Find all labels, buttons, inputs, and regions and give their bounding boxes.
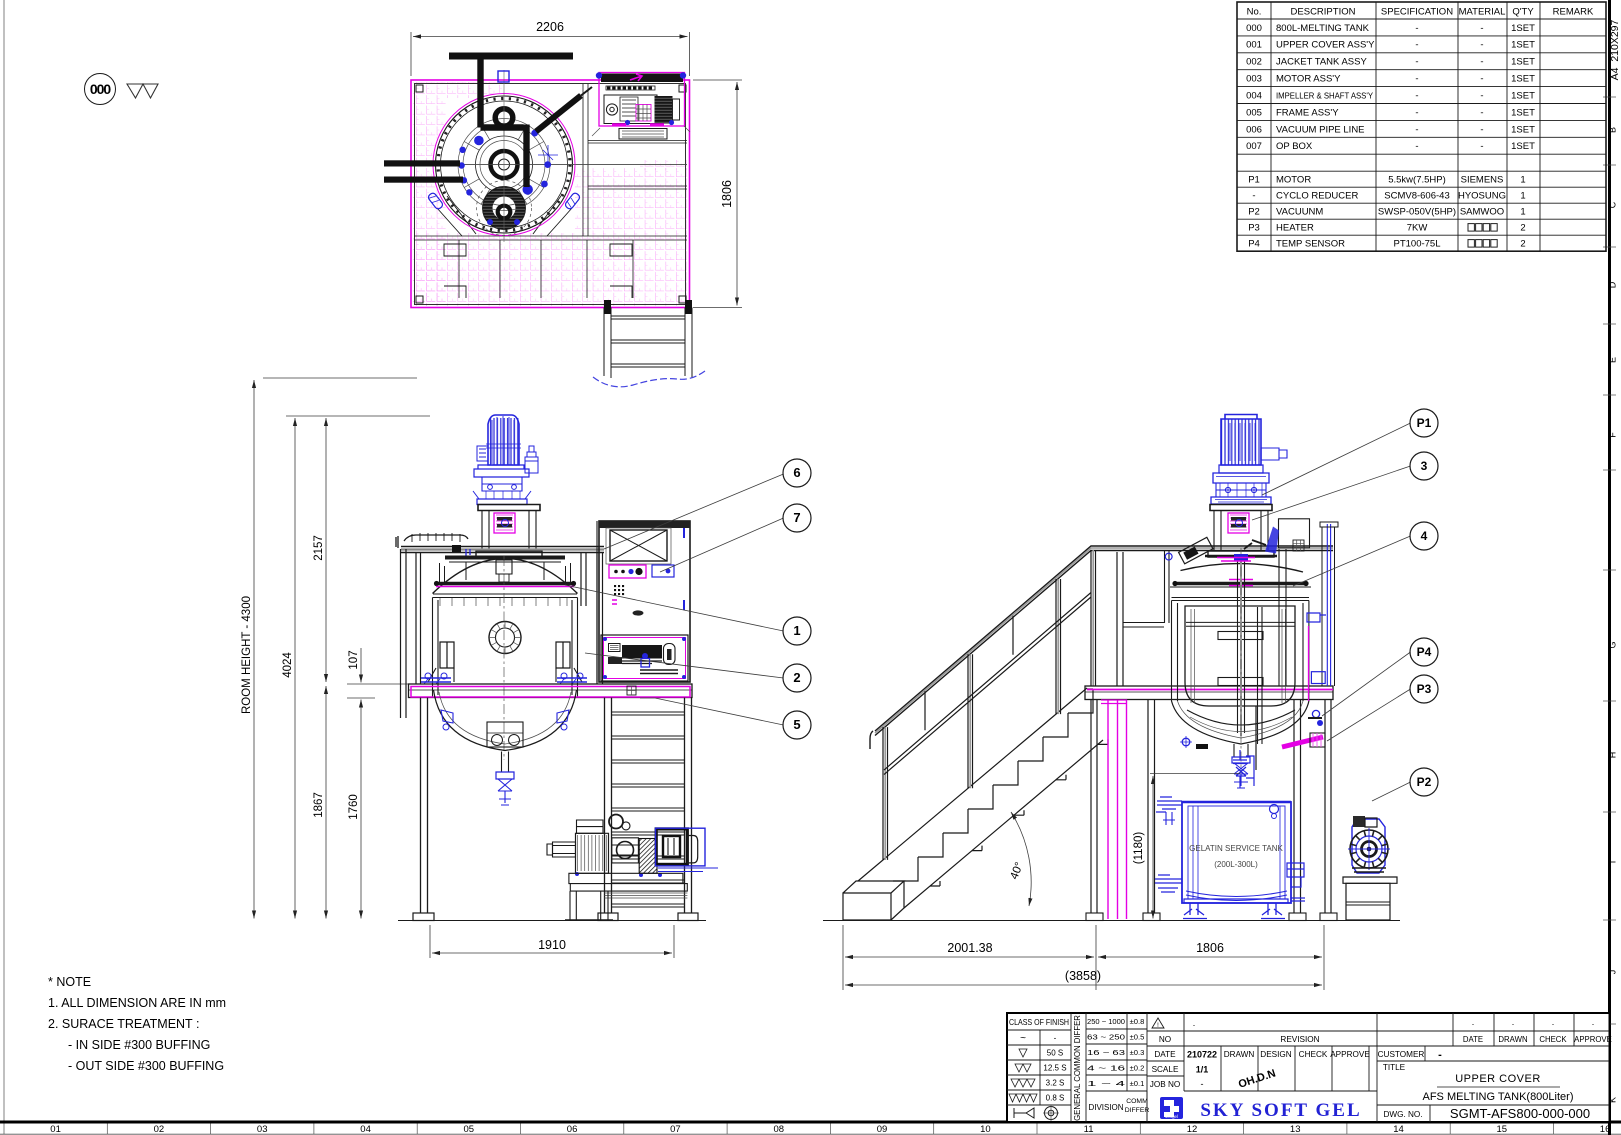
svg-text:1/1: 1/1	[1196, 1065, 1209, 1075]
svg-text:02: 02	[154, 1124, 165, 1135]
svg-text:2: 2	[793, 670, 800, 685]
svg-text:D: D	[1608, 281, 1618, 288]
svg-text:000: 000	[90, 81, 112, 97]
svg-text:(1180): (1180)	[1133, 832, 1145, 865]
svg-text:7: 7	[793, 510, 800, 525]
svg-text:5.5kw(7.5HP): 5.5kw(7.5HP)	[1388, 175, 1446, 186]
svg-text:210722: 210722	[1187, 1050, 1217, 1060]
svg-text:A4 210X297: A4 210X297	[1609, 19, 1621, 80]
svg-text:-: -	[1415, 91, 1418, 102]
svg-text:~: ~	[1020, 1033, 1026, 1044]
svg-text:2157: 2157	[313, 535, 325, 561]
svg-text:-: -	[1480, 124, 1483, 135]
svg-text:SPECIFICATION: SPECIFICATION	[1381, 7, 1453, 18]
svg-text:P2: P2	[1417, 775, 1432, 789]
svg-text:GELATIN SERVICE TANK: GELATIN SERVICE TANK	[1189, 844, 1283, 853]
svg-text:.: .	[1472, 1017, 1475, 1027]
svg-text:1SET: 1SET	[1511, 57, 1535, 68]
svg-text:1760: 1760	[348, 794, 360, 820]
svg-text:1: 1	[1520, 175, 1525, 186]
svg-text:63 ~ 250: 63 ~ 250	[1087, 1033, 1125, 1042]
svg-text:001: 001	[1246, 40, 1262, 51]
svg-text:07: 07	[670, 1124, 681, 1135]
svg-text:UPPER COVER ASS'Y: UPPER COVER ASS'Y	[1276, 40, 1375, 51]
svg-text:SCALE: SCALE	[1152, 1065, 1179, 1074]
svg-text:ROOM HEIGHT - 4300: ROOM HEIGHT - 4300	[241, 596, 253, 714]
svg-text:SCMV8-606-43: SCMV8-606-43	[1384, 191, 1449, 202]
svg-text:.: .	[1512, 1017, 1515, 1027]
svg-text:JOB NO: JOB NO	[1150, 1080, 1180, 1089]
svg-text:1. ALL DIMENSION ARE IN mm: 1. ALL DIMENSION ARE IN mm	[48, 996, 226, 1010]
svg-text:DWG. NO.: DWG. NO.	[1383, 1110, 1422, 1119]
svg-text:-: -	[1480, 57, 1483, 68]
svg-text:1867: 1867	[313, 792, 325, 818]
svg-text:CHECK: CHECK	[1299, 1050, 1328, 1059]
svg-text:±0.2: ±0.2	[1130, 1064, 1145, 1073]
svg-text:1: 1	[793, 623, 800, 638]
svg-text:-: -	[1415, 57, 1418, 68]
svg-text:2. SURACE TREATMENT :: 2. SURACE TREATMENT :	[48, 1017, 199, 1031]
svg-text:11: 11	[1084, 1124, 1094, 1135]
svg-text:VACUUM PIPE LINE: VACUUM PIPE LINE	[1276, 124, 1365, 135]
svg-text:±0.8: ±0.8	[1130, 1017, 1145, 1026]
svg-text:-: -	[1480, 74, 1483, 85]
svg-text:DRAWN: DRAWN	[1224, 1050, 1255, 1059]
svg-text:FRAME ASS'Y: FRAME ASS'Y	[1276, 107, 1339, 118]
svg-text:.: .	[1193, 1018, 1196, 1028]
svg-text:250 ~ 1000: 250 ~ 1000	[1087, 1017, 1125, 1026]
svg-text:HYOSUNG: HYOSUNG	[1458, 191, 1506, 202]
svg-text:COMM: COMM	[1126, 1098, 1148, 1105]
svg-text:002: 002	[1246, 57, 1262, 68]
svg-text:(200L-300L): (200L-300L)	[1214, 860, 1258, 869]
svg-text:-: -	[1201, 1079, 1204, 1089]
svg-text:-: -	[1480, 91, 1483, 102]
svg-text:06: 06	[567, 1124, 578, 1135]
svg-text:±0.3: ±0.3	[1130, 1048, 1145, 1057]
svg-text:2001.38: 2001.38	[947, 941, 992, 955]
svg-text:DATE: DATE	[1463, 1035, 1483, 1044]
svg-text:CLASS OF FINISH: CLASS OF FINISH	[1009, 1017, 1069, 1027]
svg-text:SWSP-050V(5HP): SWSP-050V(5HP)	[1378, 207, 1456, 218]
svg-text:006: 006	[1246, 124, 1262, 135]
svg-text:* NOTE: * NOTE	[48, 975, 91, 989]
svg-text:-: -	[1415, 74, 1418, 85]
svg-text:P1: P1	[1248, 175, 1260, 186]
svg-text:CYCLO REDUCER: CYCLO REDUCER	[1276, 191, 1358, 202]
svg-text:P1: P1	[1417, 416, 1432, 430]
svg-text:12: 12	[1187, 1124, 1198, 1135]
svg-text:13: 13	[1290, 1124, 1301, 1135]
svg-text:-: -	[1252, 191, 1255, 202]
svg-text:MOTOR: MOTOR	[1276, 175, 1311, 186]
svg-text:IMPELLER & SHAFT ASS'Y: IMPELLER & SHAFT ASS'Y	[1276, 91, 1373, 101]
svg-text:±0.5: ±0.5	[1130, 1033, 1145, 1042]
svg-text:DESIGN: DESIGN	[1260, 1050, 1291, 1059]
svg-text:P2: P2	[1248, 207, 1260, 218]
svg-text:09: 09	[877, 1124, 888, 1135]
svg-text:.: .	[1552, 1017, 1555, 1027]
svg-text:2: 2	[1520, 239, 1525, 250]
svg-text:1SET: 1SET	[1511, 40, 1535, 51]
svg-text:-: -	[1415, 141, 1418, 152]
svg-text:05: 05	[464, 1124, 475, 1135]
svg-text:PT100-75L: PT100-75L	[1393, 239, 1440, 250]
svg-text:- OUT SIDE #300 BUFFING: - OUT SIDE #300 BUFFING	[68, 1059, 224, 1073]
svg-text:NO: NO	[1159, 1035, 1171, 1044]
svg-text:04: 04	[360, 1124, 371, 1135]
svg-text:DESCRIPTION: DESCRIPTION	[1291, 7, 1356, 18]
svg-text:4: 4	[1421, 529, 1428, 543]
svg-text:1SET: 1SET	[1511, 107, 1535, 118]
svg-text:1806: 1806	[720, 180, 734, 208]
svg-text:REMARK: REMARK	[1553, 7, 1594, 18]
svg-text:5: 5	[793, 717, 800, 732]
svg-text:0.8 S: 0.8 S	[1046, 1094, 1065, 1103]
svg-text:MOTOR ASS'Y: MOTOR ASS'Y	[1276, 74, 1341, 85]
svg-text:12.5 S: 12.5 S	[1043, 1064, 1066, 1073]
svg-text:3.2 S: 3.2 S	[1046, 1079, 1065, 1088]
svg-text:CUSTOMER: CUSTOMER	[1378, 1050, 1425, 1059]
svg-text:-: -	[1480, 40, 1483, 51]
svg-text:1SET: 1SET	[1511, 23, 1535, 34]
svg-text:H: H	[1608, 752, 1618, 759]
svg-text:P4: P4	[1417, 645, 1432, 659]
svg-text:softgel: softgel	[1165, 1114, 1178, 1119]
svg-text:08: 08	[774, 1124, 785, 1135]
svg-text:-: -	[1415, 124, 1418, 135]
svg-text:50 S: 50 S	[1047, 1049, 1063, 1058]
svg-text:1 ~ 4: 1 ~ 4	[1087, 1079, 1125, 1088]
svg-text:I: I	[1608, 861, 1618, 864]
svg-text:005: 005	[1246, 107, 1262, 118]
svg-text:6: 6	[793, 465, 800, 480]
svg-text:2206: 2206	[536, 20, 564, 34]
svg-text:-: -	[1415, 40, 1418, 51]
svg-text:DIFFER: DIFFER	[1125, 1107, 1150, 1114]
svg-text:-: -	[1054, 1034, 1057, 1043]
svg-text:No.: No.	[1247, 7, 1262, 18]
svg-text:1806: 1806	[1196, 941, 1224, 955]
svg-text:AFS MELTING TANK(800Liter): AFS MELTING TANK(800Liter)	[1423, 1091, 1574, 1103]
svg-text:DRAWN: DRAWN	[1498, 1035, 1527, 1044]
svg-text:OP BOX: OP BOX	[1276, 141, 1313, 152]
svg-text:P3: P3	[1248, 223, 1260, 234]
svg-text:MATERIAL: MATERIAL	[1459, 7, 1506, 18]
svg-text:P3: P3	[1417, 682, 1432, 696]
svg-text:VACUUNM: VACUUNM	[1276, 207, 1323, 218]
svg-text:SKY SOFT GEL: SKY SOFT GEL	[1200, 1100, 1361, 1121]
svg-text:P4: P4	[1248, 239, 1260, 250]
svg-text:3: 3	[1421, 459, 1428, 473]
svg-text:1SET: 1SET	[1511, 74, 1535, 85]
svg-text:003: 003	[1246, 74, 1262, 85]
svg-text:.: .	[1592, 1017, 1595, 1027]
svg-text:GENERAL COMMON DIFFER: GENERAL COMMON DIFFER	[1073, 1015, 1082, 1121]
svg-text:C: C	[1608, 201, 1618, 208]
svg-text:03: 03	[257, 1124, 268, 1135]
svg-text:G: G	[1608, 641, 1618, 648]
svg-text:UPPER COVER: UPPER COVER	[1455, 1073, 1541, 1085]
svg-text:4024: 4024	[282, 652, 294, 678]
svg-text:4 ~ 16: 4 ~ 16	[1087, 1064, 1125, 1073]
svg-text:APPROVE: APPROVE	[1574, 1035, 1612, 1044]
svg-text:-: -	[1480, 107, 1483, 118]
svg-text:CHECK: CHECK	[1539, 1035, 1567, 1044]
svg-text:APPROVE: APPROVE	[1330, 1050, 1370, 1059]
svg-text:- IN SIDE #300 BUFFING: - IN SIDE #300 BUFFING	[68, 1038, 210, 1052]
svg-text:1SET: 1SET	[1511, 124, 1535, 135]
svg-text:1SET: 1SET	[1511, 91, 1535, 102]
svg-text:E: E	[1608, 357, 1618, 363]
svg-text:2: 2	[1520, 223, 1525, 234]
svg-text:J: J	[1608, 970, 1618, 975]
svg-text:DATE: DATE	[1154, 1050, 1176, 1059]
svg-text:-: -	[1480, 141, 1483, 152]
svg-text:1SET: 1SET	[1511, 141, 1535, 152]
svg-text:JACKET TANK ASSY: JACKET TANK ASSY	[1276, 57, 1367, 68]
svg-text:-: -	[1438, 1049, 1442, 1061]
svg-text:-: -	[1480, 23, 1483, 34]
svg-text:SIEMENS: SIEMENS	[1461, 175, 1504, 186]
svg-text:7KW: 7KW	[1407, 223, 1428, 234]
svg-text:REVISION: REVISION	[1280, 1035, 1319, 1044]
svg-text:TITLE: TITLE	[1383, 1063, 1406, 1072]
svg-text:F: F	[1608, 432, 1618, 438]
svg-text:107: 107	[348, 650, 360, 669]
svg-text:SGMT-AFS800-000-000: SGMT-AFS800-000-000	[1450, 1106, 1590, 1121]
svg-text:14: 14	[1393, 1124, 1404, 1135]
svg-text:800L-MELTING TANK: 800L-MELTING TANK	[1276, 23, 1370, 34]
svg-text:Q'TY: Q'TY	[1512, 7, 1534, 18]
svg-text:DIVISION: DIVISION	[1088, 1103, 1123, 1112]
svg-text:01: 01	[50, 1124, 61, 1135]
svg-text:1: 1	[1520, 191, 1525, 202]
svg-text:004: 004	[1246, 91, 1262, 102]
svg-text:±0.1: ±0.1	[1130, 1079, 1145, 1088]
svg-text:1910: 1910	[538, 938, 566, 952]
svg-text:SAMWOO: SAMWOO	[1460, 207, 1504, 218]
svg-text:-: -	[1415, 107, 1418, 118]
svg-text:HEATER: HEATER	[1276, 223, 1314, 234]
svg-text:TEMP SENSOR: TEMP SENSOR	[1276, 239, 1345, 250]
svg-text:1: 1	[1520, 207, 1525, 218]
svg-text:16 ~ 63: 16 ~ 63	[1087, 1048, 1125, 1057]
svg-text:B: B	[1608, 127, 1618, 133]
svg-text:15: 15	[1497, 1124, 1508, 1135]
svg-text:-: -	[1415, 23, 1418, 34]
svg-text:(3858): (3858)	[1065, 969, 1101, 983]
svg-text:10: 10	[980, 1124, 991, 1135]
svg-text:000: 000	[1246, 23, 1262, 34]
svg-text:007: 007	[1246, 141, 1262, 152]
